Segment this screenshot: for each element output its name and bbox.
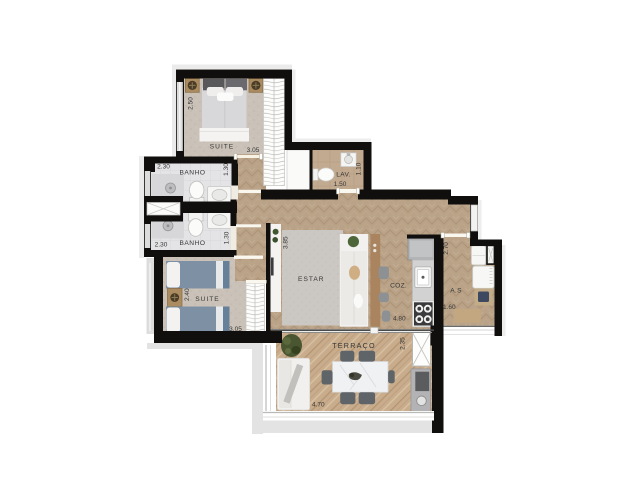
svg-text:3.05: 3.05 <box>229 326 242 333</box>
svg-text:2.30: 2.30 <box>155 242 168 249</box>
svg-text:3.05: 3.05 <box>247 147 260 154</box>
svg-text:TERRAÇO: TERRAÇO <box>332 341 376 350</box>
svg-text:1.30: 1.30 <box>224 231 231 244</box>
svg-text:1.10: 1.10 <box>356 162 363 175</box>
svg-text:BANHO: BANHO <box>180 170 206 177</box>
svg-text:1.50: 1.50 <box>334 181 347 188</box>
svg-text:ESTAR: ESTAR <box>298 276 325 283</box>
svg-text:2.70: 2.70 <box>443 242 450 255</box>
svg-text:1.30: 1.30 <box>223 163 230 176</box>
svg-text:LAV.: LAV. <box>336 172 350 179</box>
svg-text:A.S: A.S <box>450 288 462 295</box>
svg-text:BANHO: BANHO <box>180 240 206 247</box>
svg-text:2.40: 2.40 <box>184 288 191 301</box>
svg-text:4.70: 4.70 <box>312 402 325 409</box>
svg-text:SUITE: SUITE <box>210 144 234 151</box>
svg-text:1.60: 1.60 <box>443 304 456 311</box>
svg-text:SUITE: SUITE <box>195 296 219 303</box>
svg-text:2.50: 2.50 <box>188 97 195 110</box>
svg-text:3.85: 3.85 <box>283 236 290 249</box>
svg-text:2.30: 2.30 <box>157 164 170 171</box>
svg-text:COZ.: COZ. <box>390 283 407 290</box>
svg-text:4.80: 4.80 <box>393 316 406 323</box>
svg-text:2.35: 2.35 <box>400 337 407 350</box>
